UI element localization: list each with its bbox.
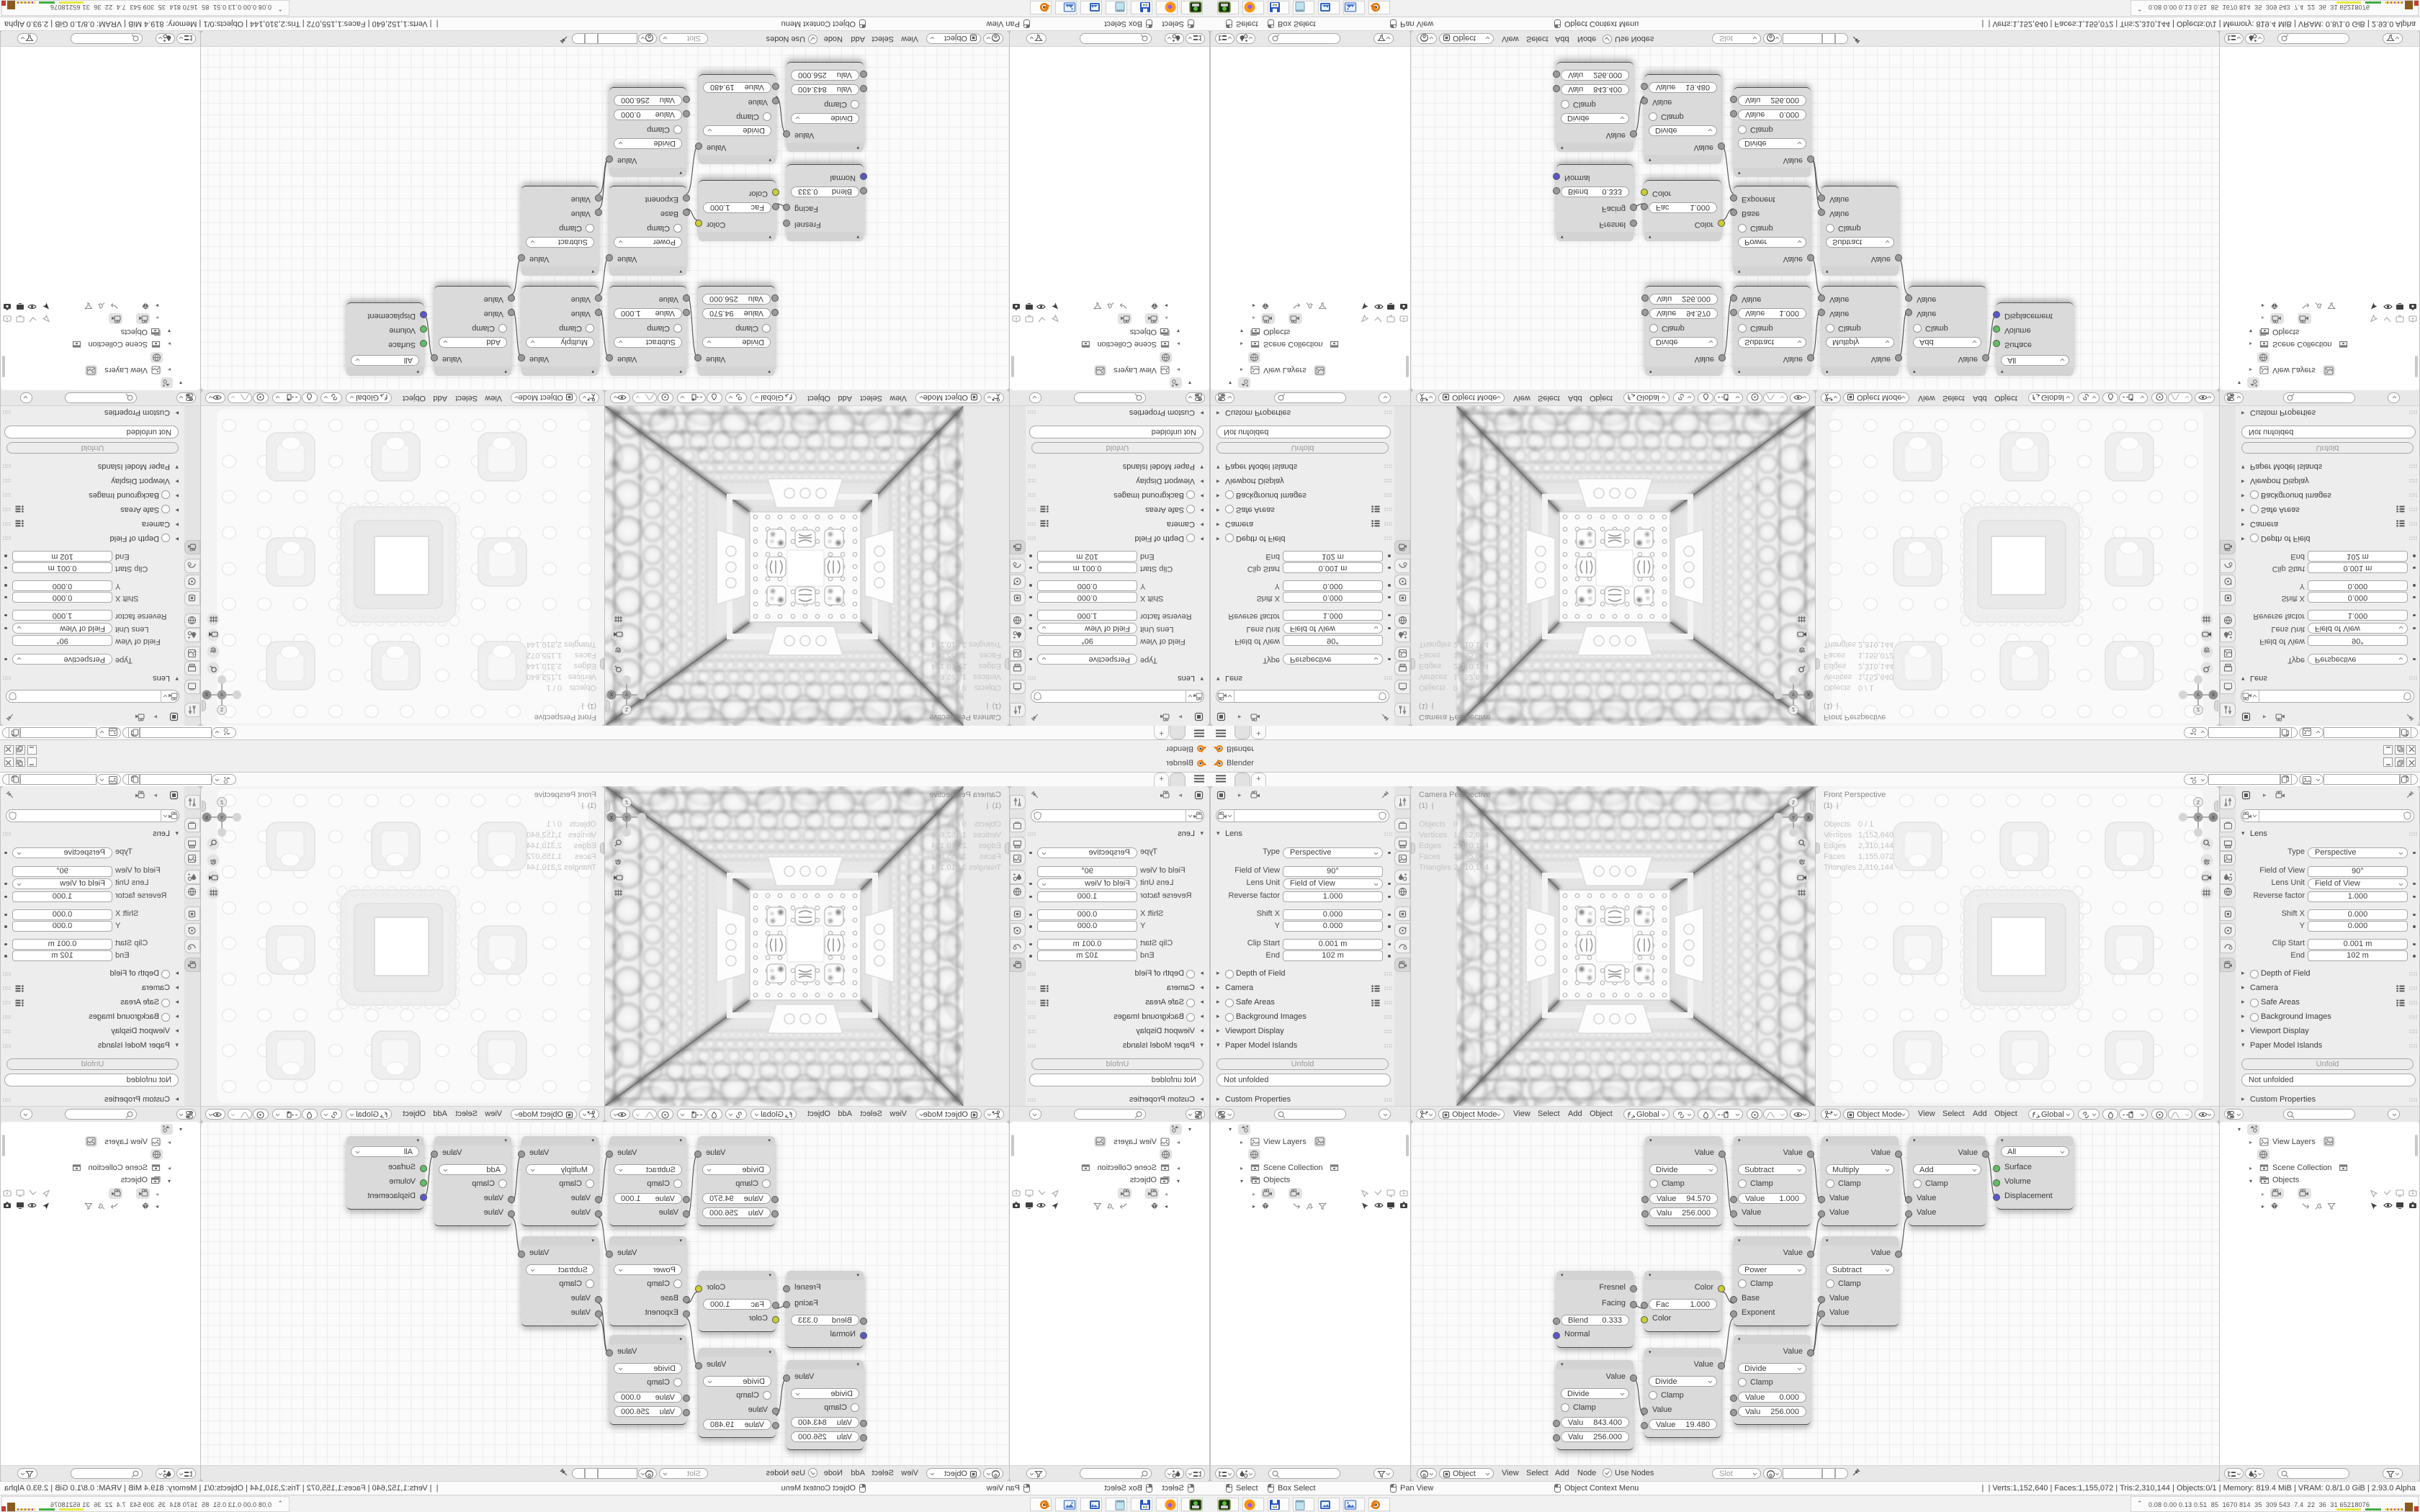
svg-text:Y: Y xyxy=(624,691,628,696)
svg-text:Z: Z xyxy=(1792,706,1796,711)
svg-text:Y: Y xyxy=(220,816,223,821)
svg-text:X: X xyxy=(1807,691,1811,696)
svg-text:Z: Z xyxy=(624,801,628,806)
svg-text:Z: Z xyxy=(2197,801,2200,806)
svg-text:Z: Z xyxy=(220,801,223,806)
svg-text:X: X xyxy=(205,816,208,821)
svg-text:Z: Z xyxy=(2197,706,2200,711)
svg-text:X: X xyxy=(2212,691,2215,696)
svg-text:Z: Z xyxy=(624,706,628,711)
svg-text:X: X xyxy=(2212,816,2215,821)
svg-text:X: X xyxy=(205,691,208,696)
svg-text:X: X xyxy=(1807,816,1811,821)
svg-text:Y: Y xyxy=(220,691,223,696)
svg-text:Y: Y xyxy=(1792,816,1796,821)
svg-text:64: 64 xyxy=(1143,2,1147,6)
svg-text:Y: Y xyxy=(2197,691,2200,696)
svg-text:Z: Z xyxy=(1792,801,1796,806)
svg-text:Y: Y xyxy=(624,816,628,821)
svg-text:Z: Z xyxy=(220,706,223,711)
svg-text:Y: Y xyxy=(2197,816,2200,821)
svg-text:64: 64 xyxy=(1143,1506,1147,1510)
svg-text:Y: Y xyxy=(1792,691,1796,696)
svg-text:64: 64 xyxy=(1273,2,1277,6)
svg-text:X: X xyxy=(609,691,613,696)
svg-text:X: X xyxy=(609,816,613,821)
